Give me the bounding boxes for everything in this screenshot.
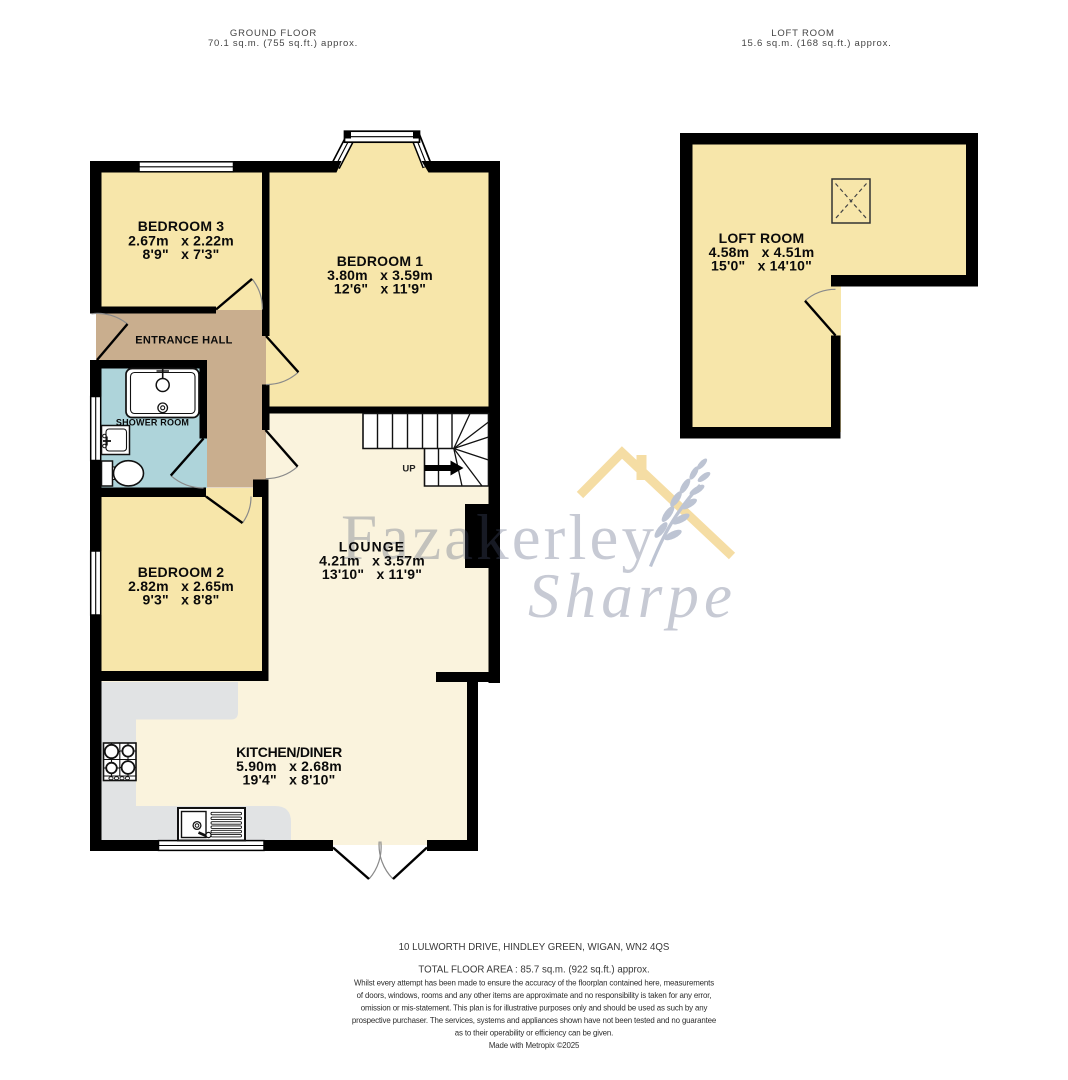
svg-text:SHOWER ROOM: SHOWER ROOM (116, 417, 189, 427)
svg-text:70.1 sq.m. (755 sq.ft.) approx: 70.1 sq.m. (755 sq.ft.) approx. (208, 38, 358, 49)
svg-text:13'10" x 11'9": 13'10" x 11'9" (322, 566, 422, 582)
svg-text:as to their operability or eff: as to their operability or efficiency ca… (455, 1029, 613, 1038)
svg-text:9'3" x 8'8": 9'3" x 8'8" (142, 592, 219, 608)
svg-text:Whilst every attempt has been: Whilst every attempt has been made to en… (354, 979, 714, 988)
svg-text:Made with Metropix ©2025: Made with Metropix ©2025 (489, 1041, 580, 1050)
svg-text:10 LULWORTH DRIVE, HINDLEY GRE: 10 LULWORTH DRIVE, HINDLEY GREEN, WIGAN,… (399, 942, 670, 953)
svg-text:of doors, windows, rooms and a: of doors, windows, rooms and any other i… (357, 991, 712, 1000)
svg-text:ENTRANCE HALL: ENTRANCE HALL (135, 335, 232, 347)
svg-text:15.6 sq.m. (168 sq.ft.) approx: 15.6 sq.m. (168 sq.ft.) approx. (742, 38, 892, 49)
svg-text:12'6" x 11'9": 12'6" x 11'9" (334, 281, 426, 297)
svg-text:15'0" x 14'10": 15'0" x 14'10" (711, 258, 812, 274)
svg-text:UP: UP (402, 463, 416, 474)
svg-text:19'4" x 8'10": 19'4" x 8'10" (243, 772, 336, 788)
svg-text:TOTAL FLOOR AREA : 85.7 sq.m.: TOTAL FLOOR AREA : 85.7 sq.m. (922 sq.ft… (418, 964, 649, 975)
svg-text:omission or mis-statement. Thi: omission or mis-statement. This plan is … (361, 1004, 708, 1013)
svg-text:prospective purchaser. The ser: prospective purchaser. The services, sys… (352, 1016, 717, 1025)
svg-text:8'9" x 7'3": 8'9" x 7'3" (142, 246, 219, 262)
